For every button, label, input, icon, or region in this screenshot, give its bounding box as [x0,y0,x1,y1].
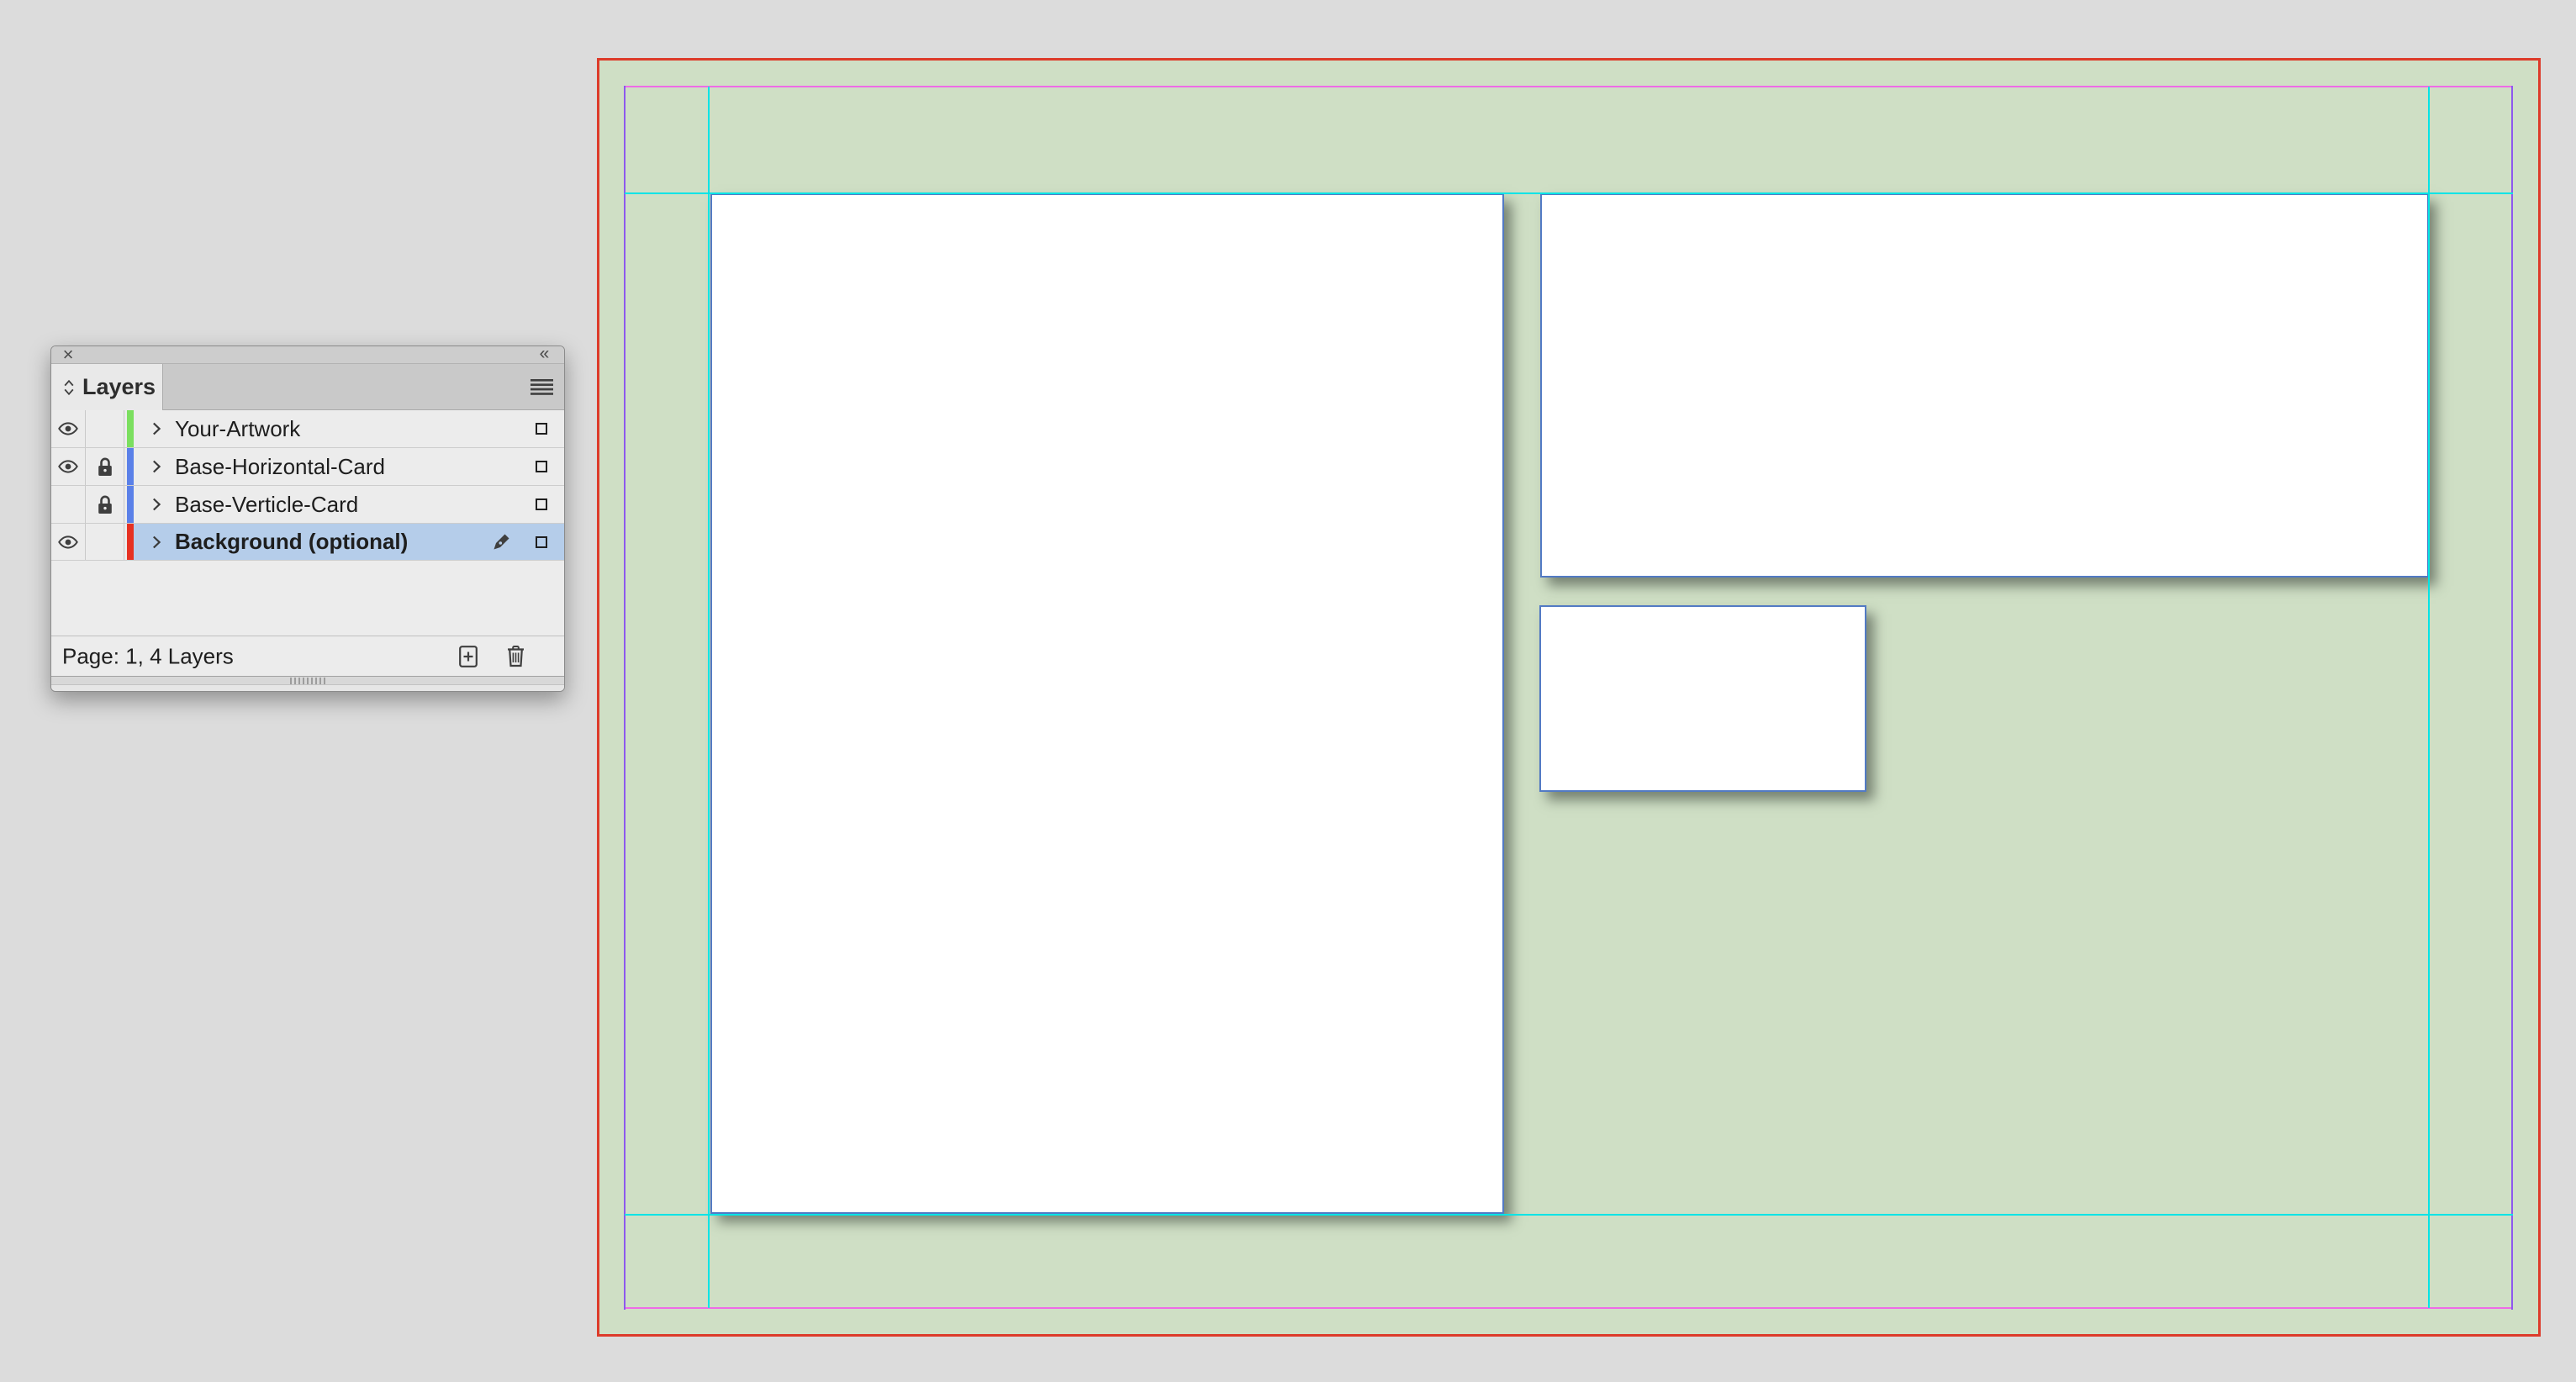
visibility-toggle[interactable] [51,410,86,447]
layer-row-main[interactable]: Base-Verticle-Card [134,486,564,523]
lock-icon [98,456,113,477]
lock-icon [98,494,113,515]
visibility-toggle[interactable] [51,486,86,523]
panel-divider [51,676,564,685]
eye-icon [58,535,78,549]
column-guide-right [2511,86,2513,1310]
layers-list: Your-Artwork [51,410,564,636]
layer-color-bar [127,486,134,523]
layer-name: Base-Horizontal-Card [175,454,385,480]
disclosure-chevron-icon[interactable] [152,498,161,511]
small-card-frame[interactable] [1539,605,1866,792]
layers-panel: × « Layers [50,345,565,692]
layer-color-bar [127,524,134,560]
page-layer-count: Page: 1, 4 Layers [62,643,234,669]
new-layer-button[interactable] [459,646,478,667]
panel-tab-row: Layers [51,364,564,410]
visibility-toggle[interactable] [51,524,86,560]
layer-name: Base-Verticle-Card [175,492,358,518]
ruler-guide-horizontal-2[interactable] [625,1214,2513,1216]
panel-titlebar[interactable]: × « [51,346,564,364]
layer-row-your-artwork[interactable]: Your-Artwork [51,410,564,448]
ruler-guide-horizontal-1[interactable] [625,193,2513,194]
panel-status-bar: Page: 1, 4 Layers [51,636,564,676]
layer-row-main[interactable]: Background (optional) [134,524,564,560]
resize-grip[interactable] [290,678,325,684]
margin-guide-bottom [625,1307,2513,1309]
panel-title: Layers [82,374,156,400]
visibility-toggle[interactable] [51,448,86,485]
close-icon[interactable]: × [60,346,77,364]
layer-color-bar [127,410,134,447]
pen-nib-icon [493,533,510,551]
lock-toggle[interactable] [87,486,124,523]
layer-row-base-verticle-card[interactable]: Base-Verticle-Card [51,486,564,524]
layer-row-main[interactable]: Base-Horizontal-Card [134,448,564,485]
target-square[interactable] [536,423,547,435]
tab-layers[interactable]: Layers [51,364,163,410]
disclosure-chevron-icon[interactable] [152,460,161,473]
collapse-panel-icon[interactable]: « [534,346,554,364]
layer-row-background-optional[interactable]: Background (optional) [51,524,564,561]
layer-row-base-horizontal-card[interactable]: Base-Horizontal-Card [51,448,564,486]
target-square[interactable] [536,498,547,510]
lock-toggle[interactable] [87,448,124,485]
layer-row-main[interactable]: Your-Artwork [134,410,564,447]
pasteboard: × « Layers [0,0,2576,1382]
margin-guide-top [625,86,2513,87]
eye-icon [58,460,78,473]
trash-icon [507,645,525,667]
panel-footer [51,685,564,692]
horizontal-card-frame[interactable] [1540,193,2429,578]
delete-layer-button[interactable] [507,645,525,667]
layer-name: Background (optional) [175,529,408,555]
layer-name: Your-Artwork [175,416,300,442]
disclosure-chevron-icon[interactable] [152,422,161,435]
disclosure-chevron-icon[interactable] [152,535,161,549]
lock-toggle[interactable] [87,524,124,560]
panel-cycle-icon[interactable] [63,378,75,397]
vertical-card-frame[interactable] [710,193,1504,1214]
ruler-guide-vertical-2[interactable] [2428,87,2430,1308]
target-square[interactable] [536,536,547,548]
panel-menu-icon[interactable] [531,378,553,396]
column-guide-left [624,86,626,1310]
eye-icon [58,422,78,435]
new-layer-icon [459,646,478,667]
ruler-guide-vertical-1[interactable] [708,87,710,1308]
target-square[interactable] [536,461,547,472]
layer-color-bar [127,448,134,485]
lock-toggle[interactable] [87,410,124,447]
